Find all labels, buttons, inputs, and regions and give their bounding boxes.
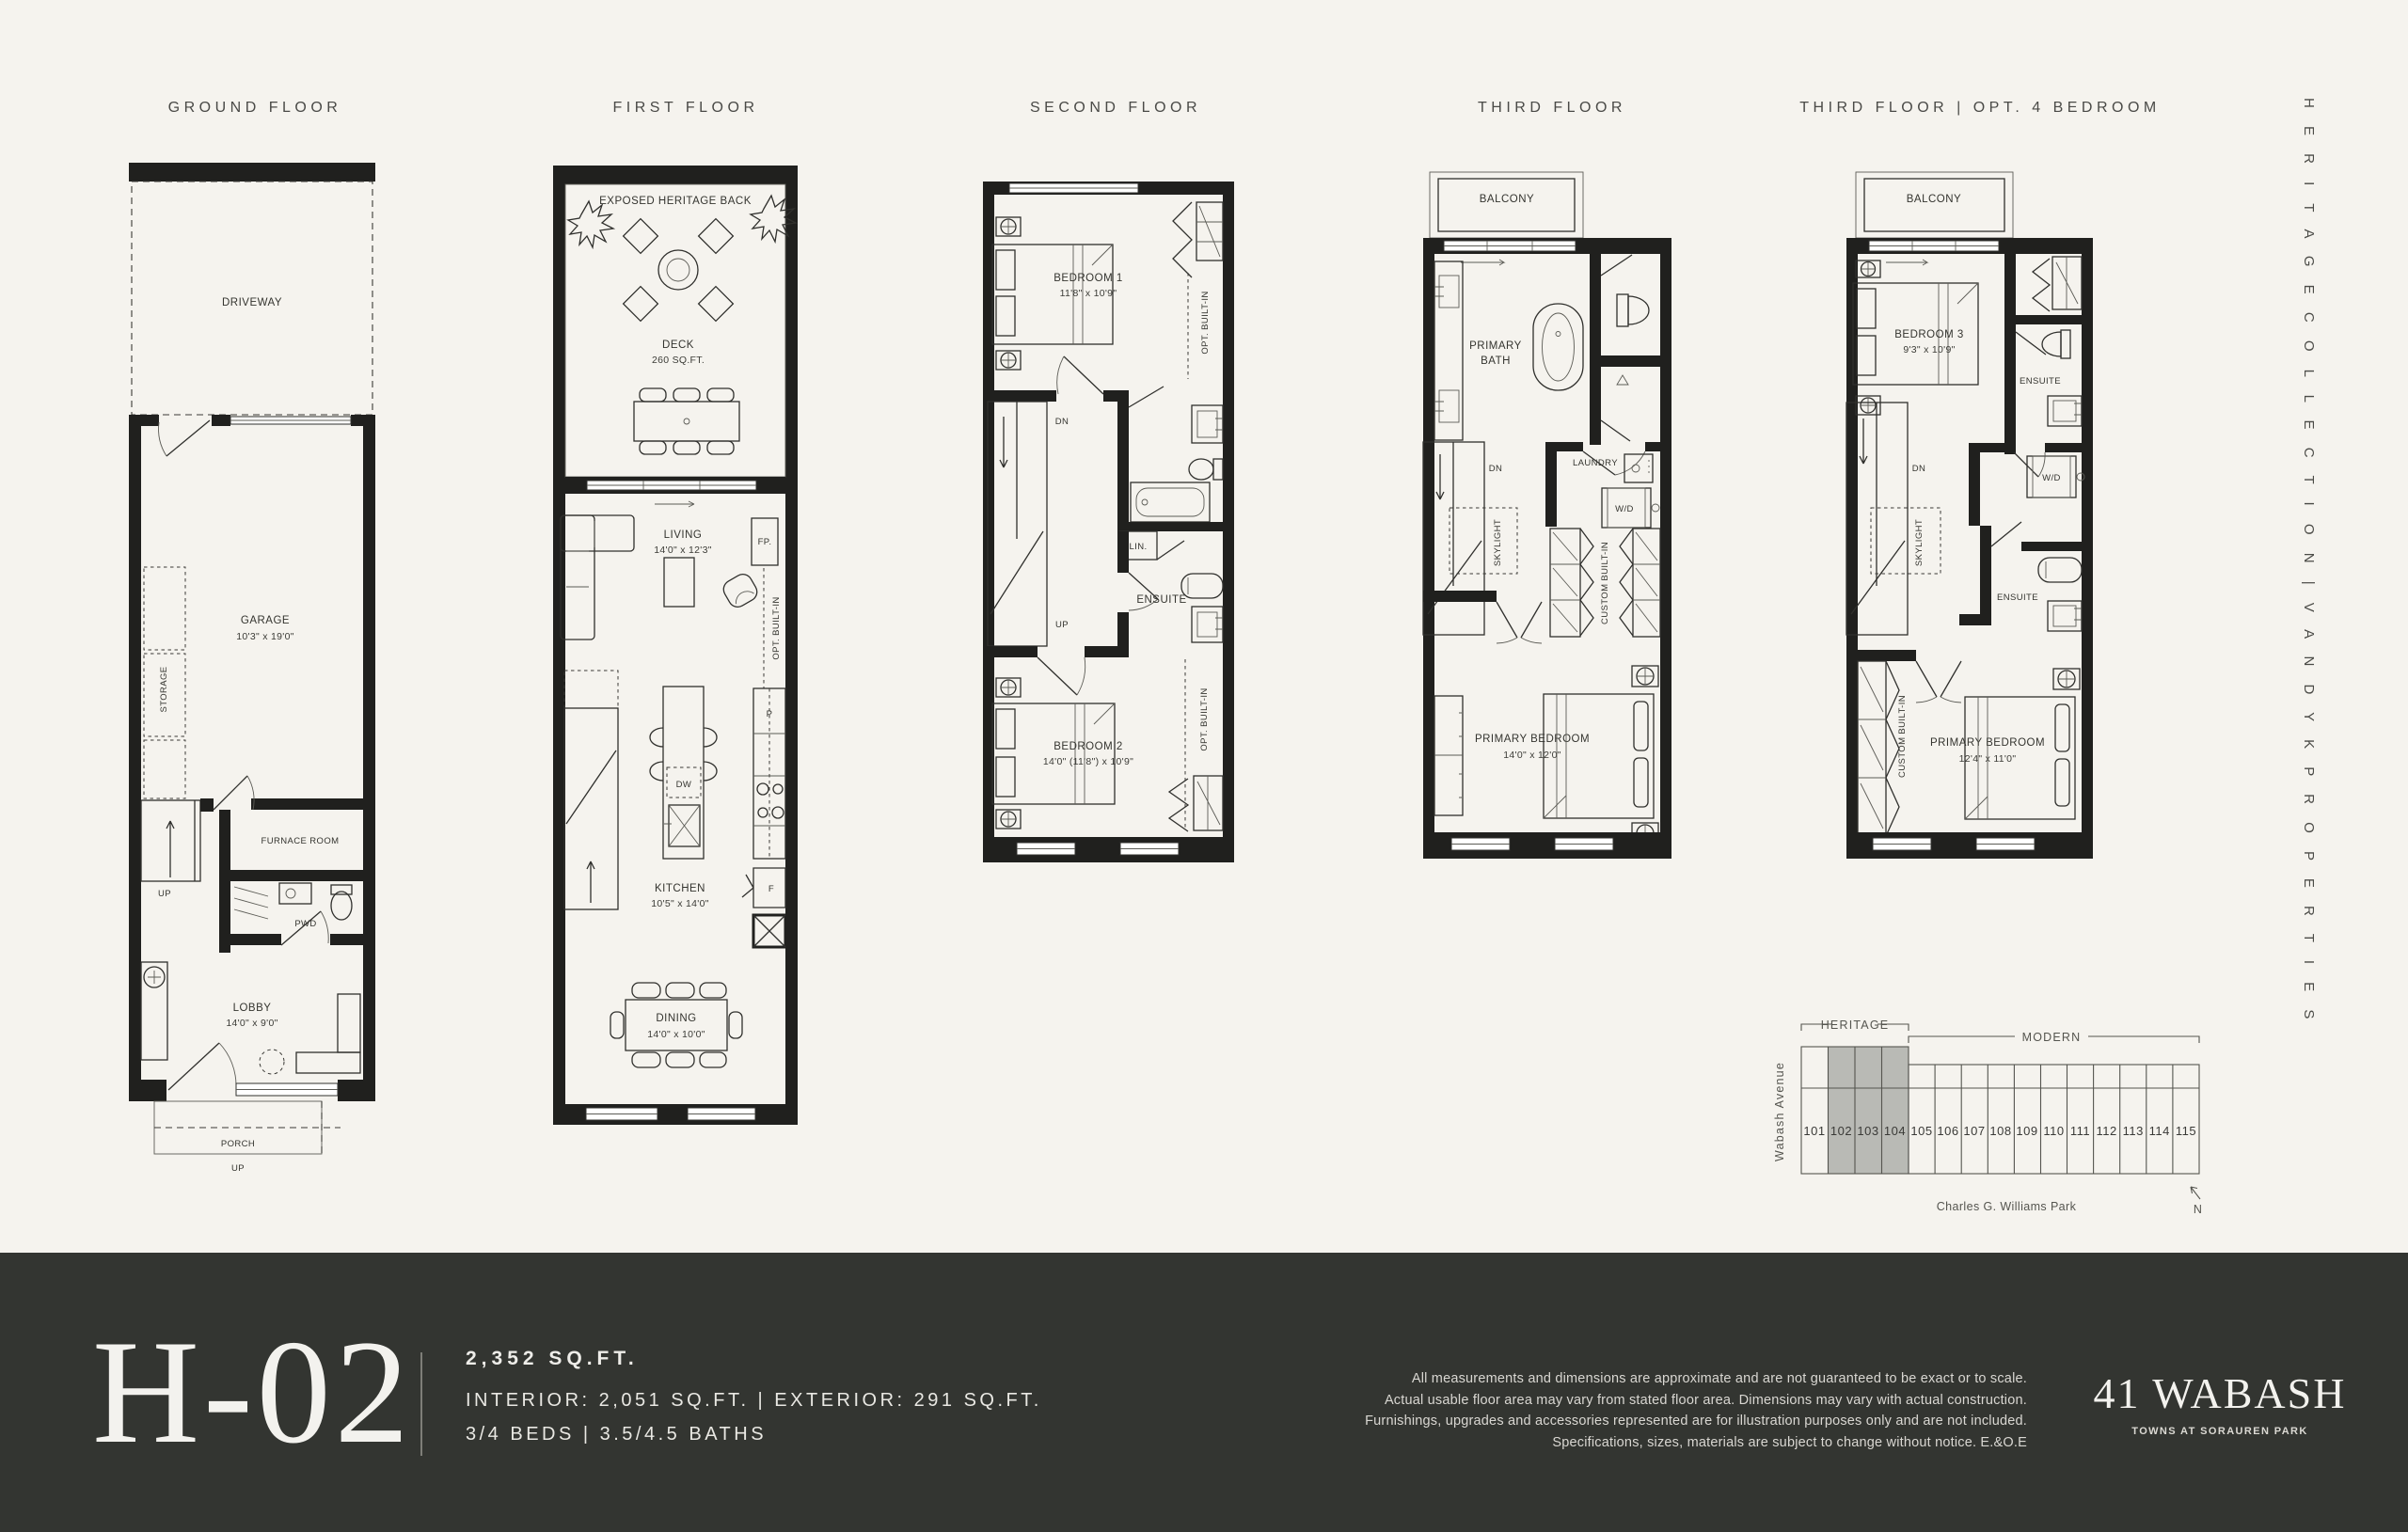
label-pantry: P [767,709,773,719]
unit-101: 101 [1803,1124,1825,1138]
label-dining-dims: 14'0" x 10'0" [647,1029,705,1040]
bedroom1-lamps [996,217,1021,370]
unit-114: 114 [2149,1124,2170,1138]
label-north: N [2194,1203,2203,1216]
unit-102: 102 [1830,1124,1852,1138]
label-wd-third: W/D [1615,504,1634,514]
label-lobby: LOBBY [233,1003,272,1014]
dresser-third [1434,696,1463,815]
unit-111: 111 [2070,1124,2090,1138]
label-deck: DECK [662,340,694,351]
title-ground-floor: GROUND FLOOR [168,100,342,117]
third-floor-opt4-plan: BALCONY BEDROOM 3 9'3" x 10'9" ENSUITE [1846,172,2093,859]
primary-bath-vanity [1434,261,1463,440]
label-ensuite-second: ENSUITE [1136,594,1186,606]
label-living-dims: 14'0" x 12'3" [654,545,712,556]
label-living: LIVING [664,529,703,541]
label-fireplace: FP. [758,537,772,547]
plan-code: H-02 [92,1307,413,1478]
label-exposed-heritage-back: EXPOSED HERITAGE BACK [599,196,752,207]
living-coffee-table [664,558,694,607]
unit-112: 112 [2096,1124,2116,1138]
label-bedroom2-dims: 14'0" (11'8") x 10'9" [1043,756,1133,767]
toilet [1617,294,1649,326]
label-balcony-opt4: BALCONY [1907,194,1961,205]
first-floor-plan: EXPOSED HERITAGE BACK DECK 260 SQ.FT. LI… [553,166,798,1134]
label-custom-builtin-third: CUSTOM BUILT-IN [1600,542,1610,624]
unit-107: 107 [1963,1124,1985,1138]
unit-106: 106 [1937,1124,1958,1138]
label-park: Charles G. Williams Park [1937,1200,2077,1213]
disclaimer-line-2: Actual usable floor area may vary from s… [1176,1390,2027,1412]
north-arrow-icon: N [2191,1187,2203,1216]
unit-108: 108 [1989,1124,2011,1138]
label-primary-bedroom-third: PRIMARY BEDROOM [1475,734,1590,745]
ground-floor-plan: DRIVEWAY GARAGE 10'3" x 19'0" STORAGE UP… [129,163,375,1202]
label-primary-bath-2: BATH [1481,355,1511,367]
label-ensuite-upper: ENSUITE [2020,376,2061,387]
disclaimer-line-1: All measurements and dimensions are appr… [1176,1368,2027,1390]
label-kitchen: KITCHEN [655,883,705,894]
label-wabash-avenue: Wabash Avenue [1773,1062,1786,1161]
disclaimer: All measurements and dimensions are appr… [1176,1368,2027,1453]
site-map: HERITAGE MODERN 101 102 103 104 105 106 … [1778,1008,2361,1243]
bedroom-lamp-opt4 [2053,669,2080,689]
living-sofa [561,515,634,640]
unit-115: 115 [2176,1124,2196,1138]
highlighted-units [1829,1047,1909,1174]
floorplan-brochure-page: GROUND FLOOR FIRST FLOOR SECOND FLOOR TH… [0,0,2408,1532]
label-bedroom1-dims: 11'8" x 10'9" [1060,288,1117,299]
label-linen: LIN. [1129,542,1147,552]
label-modern: MODERN [2022,1031,2082,1044]
label-opt-builtin-top: OPT. BUILT-IN [1200,291,1211,354]
label-bedroom3: BEDROOM 3 [1894,329,1964,340]
label-up-second: UP [1055,620,1069,630]
label-pwd: PWD [294,919,316,929]
label-ensuite-lower: ENSUITE [1997,592,2038,603]
freestanding-tub [1533,304,1583,390]
label-garage: GARAGE [241,615,290,626]
title-third-floor-opt: THIRD FLOOR | OPT. 4 BEDROOM [1799,100,2161,117]
label-primary-bath-1: PRIMARY [1469,340,1522,352]
ensuite-lower-fixtures [2038,558,2082,631]
unit-110: 110 [2043,1124,2064,1138]
label-kitchen-dims: 10'5" x 14'0" [651,898,709,909]
footer-divider [420,1352,422,1456]
label-deck-dims: 260 SQ.FT. [652,355,705,366]
label-garage-dims: 10'3" x 19'0" [236,631,294,642]
deck-dining-table [634,388,739,454]
unit-109: 109 [2016,1124,2037,1138]
label-wd-opt4: W/D [2042,473,2061,483]
label-up-stairs: UP [158,889,171,899]
label-dishwasher: DW [676,780,692,790]
disclaimer-line-3: Furnishings, upgrades and accessories re… [1176,1411,2027,1432]
label-skylight-opt4: SKYLIGHT [1914,519,1925,566]
bedroom2-lamps [996,678,1021,829]
unit-103: 103 [1857,1124,1878,1138]
collection-rail-text: H E R I T A G E C O L L E C T I O N | V … [2301,98,2317,756]
bedroom-lamps-third [1632,666,1658,844]
brand-tagline: TOWNS AT SORAUREN PARK [2131,1426,2307,1437]
label-opt-builtin-bottom: OPT. BUILT-IN [1199,687,1210,750]
living-armchair [721,571,761,610]
interior-exterior-area: INTERIOR: 2,051 SQ.FT. | EXTERIOR: 291 S… [466,1390,1042,1412]
label-porch: PORCH [221,1139,255,1149]
disclaimer-line-4: Specifications, sizes, materials are sub… [1176,1432,2027,1454]
label-lobby-dims: 14'0" x 9'0" [226,1018,277,1029]
label-custom-builtin-opt4: CUSTOM BUILT-IN [1897,695,1908,778]
unit-104: 104 [1884,1124,1906,1138]
label-driveway: DRIVEWAY [222,297,282,308]
label-storage: STORAGE [159,666,169,712]
bath-fixtures [1131,405,1223,522]
third-floor-plan: BALCONY PRIMARY BATH [1423,172,1671,859]
beds-baths: 3/4 BEDS | 3.5/4.5 BATHS [466,1424,767,1445]
label-heritage: HERITAGE [1821,1019,1890,1032]
label-skylight-third: SKYLIGHT [1493,519,1503,566]
title-first-floor: FIRST FLOOR [613,100,759,117]
label-primary-bedroom-dims-third: 14'0" x 12'0" [1503,750,1561,761]
label-balcony-third: BALCONY [1480,194,1534,205]
label-furnace-room: FURNACE ROOM [261,836,340,846]
brand-logo: 41 WABASH [2094,1368,2347,1418]
label-dn-opt4: DN [1912,464,1926,474]
total-area: 2,352 SQ.FT. [466,1348,639,1370]
bedroom2-bed [992,703,1115,804]
label-laundry: LAUNDRY [1573,458,1618,468]
unit-113: 113 [2123,1124,2144,1138]
label-bedroom3-dims: 9'3" x 10'9" [1903,344,1955,355]
dining-table [610,983,742,1067]
label-bedroom1: BEDROOM 1 [1053,273,1123,284]
stove [757,783,784,818]
label-bedroom2: BEDROOM 2 [1053,741,1123,752]
ensuite-fixtures [1181,574,1223,642]
unit-105: 105 [1910,1124,1932,1138]
label-dn-second: DN [1055,417,1069,427]
wd-opt4: W/D [2027,456,2084,498]
title-second-floor: SECOND FLOOR [1030,100,1201,117]
custom-builtin-opt4 [1858,661,1899,837]
title-third-floor: THIRD FLOOR [1478,100,1626,117]
second-floor-plan: BEDROOM 1 11'8" x 10'9" OPT. BUILT-IN DN… [983,182,1234,862]
label-opt-builtin-first: OPT. BUILT-IN [771,596,782,659]
label-porch-up: UP [231,1163,245,1174]
label-dining: DINING [656,1013,696,1024]
label-fridge: F [768,884,774,894]
label-dn-third: DN [1489,464,1503,474]
